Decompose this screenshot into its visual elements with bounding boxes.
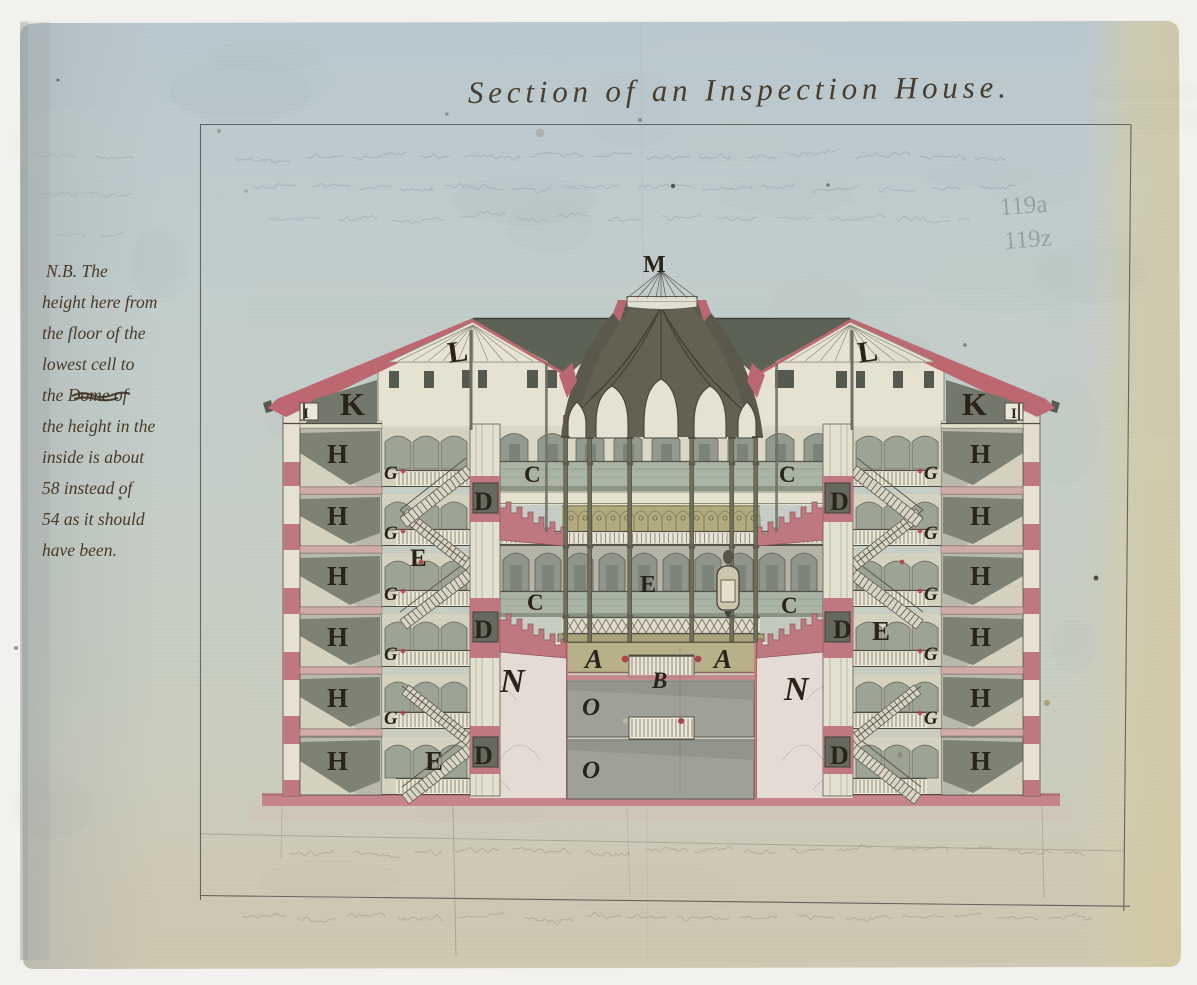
svg-text:G: G <box>384 463 398 484</box>
svg-text:height here from: height here from <box>42 292 157 312</box>
svg-text:I: I <box>303 406 309 422</box>
svg-text:O: O <box>582 694 600 721</box>
svg-text:B: B <box>651 668 667 693</box>
svg-text:N.B. The: N.B. The <box>45 261 108 281</box>
svg-text:D: D <box>474 615 493 644</box>
svg-text:N: N <box>783 671 810 708</box>
svg-text:H: H <box>970 561 991 591</box>
svg-text:H: H <box>970 746 991 776</box>
svg-text:M: M <box>643 252 666 278</box>
svg-text:G: G <box>384 523 398 544</box>
svg-text:have been.: have been. <box>42 540 117 560</box>
svg-text:G: G <box>384 584 398 605</box>
svg-text:O: O <box>582 757 600 784</box>
svg-text:H: H <box>327 683 348 713</box>
svg-text:C: C <box>779 462 796 487</box>
svg-text:H: H <box>327 561 348 591</box>
svg-text:E: E <box>872 616 890 646</box>
svg-text:H: H <box>327 622 348 652</box>
svg-text:the floor of the: the floor of the <box>42 323 146 343</box>
svg-text:C: C <box>781 593 798 618</box>
svg-text:D: D <box>830 487 849 516</box>
svg-text:G: G <box>924 463 938 484</box>
svg-text:G: G <box>384 708 398 729</box>
svg-text:E: E <box>410 545 427 572</box>
svg-text:N: N <box>499 663 526 700</box>
svg-text:D: D <box>474 487 493 516</box>
svg-text:H: H <box>970 439 991 469</box>
svg-text:inside is about: inside is about <box>42 447 145 467</box>
svg-text:K: K <box>340 386 365 422</box>
svg-text:the height in the: the height in the <box>42 416 155 436</box>
svg-text:K: K <box>962 386 987 422</box>
svg-text:H: H <box>970 683 991 713</box>
svg-text:A: A <box>583 644 603 674</box>
svg-text:G: G <box>924 644 938 665</box>
svg-text:the Dome of: the Dome of <box>42 385 130 405</box>
svg-text:G: G <box>924 708 938 729</box>
svg-text:58 instead of: 58 instead of <box>42 478 135 498</box>
svg-text:D: D <box>833 615 852 644</box>
svg-text:E: E <box>640 572 656 598</box>
svg-text:H: H <box>327 439 348 469</box>
svg-text:C: C <box>527 590 544 615</box>
svg-text:lowest cell to: lowest cell to <box>42 354 135 374</box>
svg-text:H: H <box>327 501 348 531</box>
svg-text:H: H <box>970 622 991 652</box>
svg-text:54 as it should: 54 as it should <box>42 509 145 529</box>
svg-text:I: I <box>1011 406 1017 422</box>
svg-text:D: D <box>830 741 849 770</box>
svg-text:H: H <box>970 501 991 531</box>
svg-text:G: G <box>384 644 398 665</box>
svg-text:G: G <box>924 584 938 605</box>
svg-text:D: D <box>474 741 493 770</box>
svg-text:A: A <box>712 644 732 674</box>
svg-text:C: C <box>524 462 541 487</box>
svg-text:G: G <box>924 523 938 544</box>
svg-text:E: E <box>425 746 443 776</box>
svg-text:H: H <box>327 746 348 776</box>
